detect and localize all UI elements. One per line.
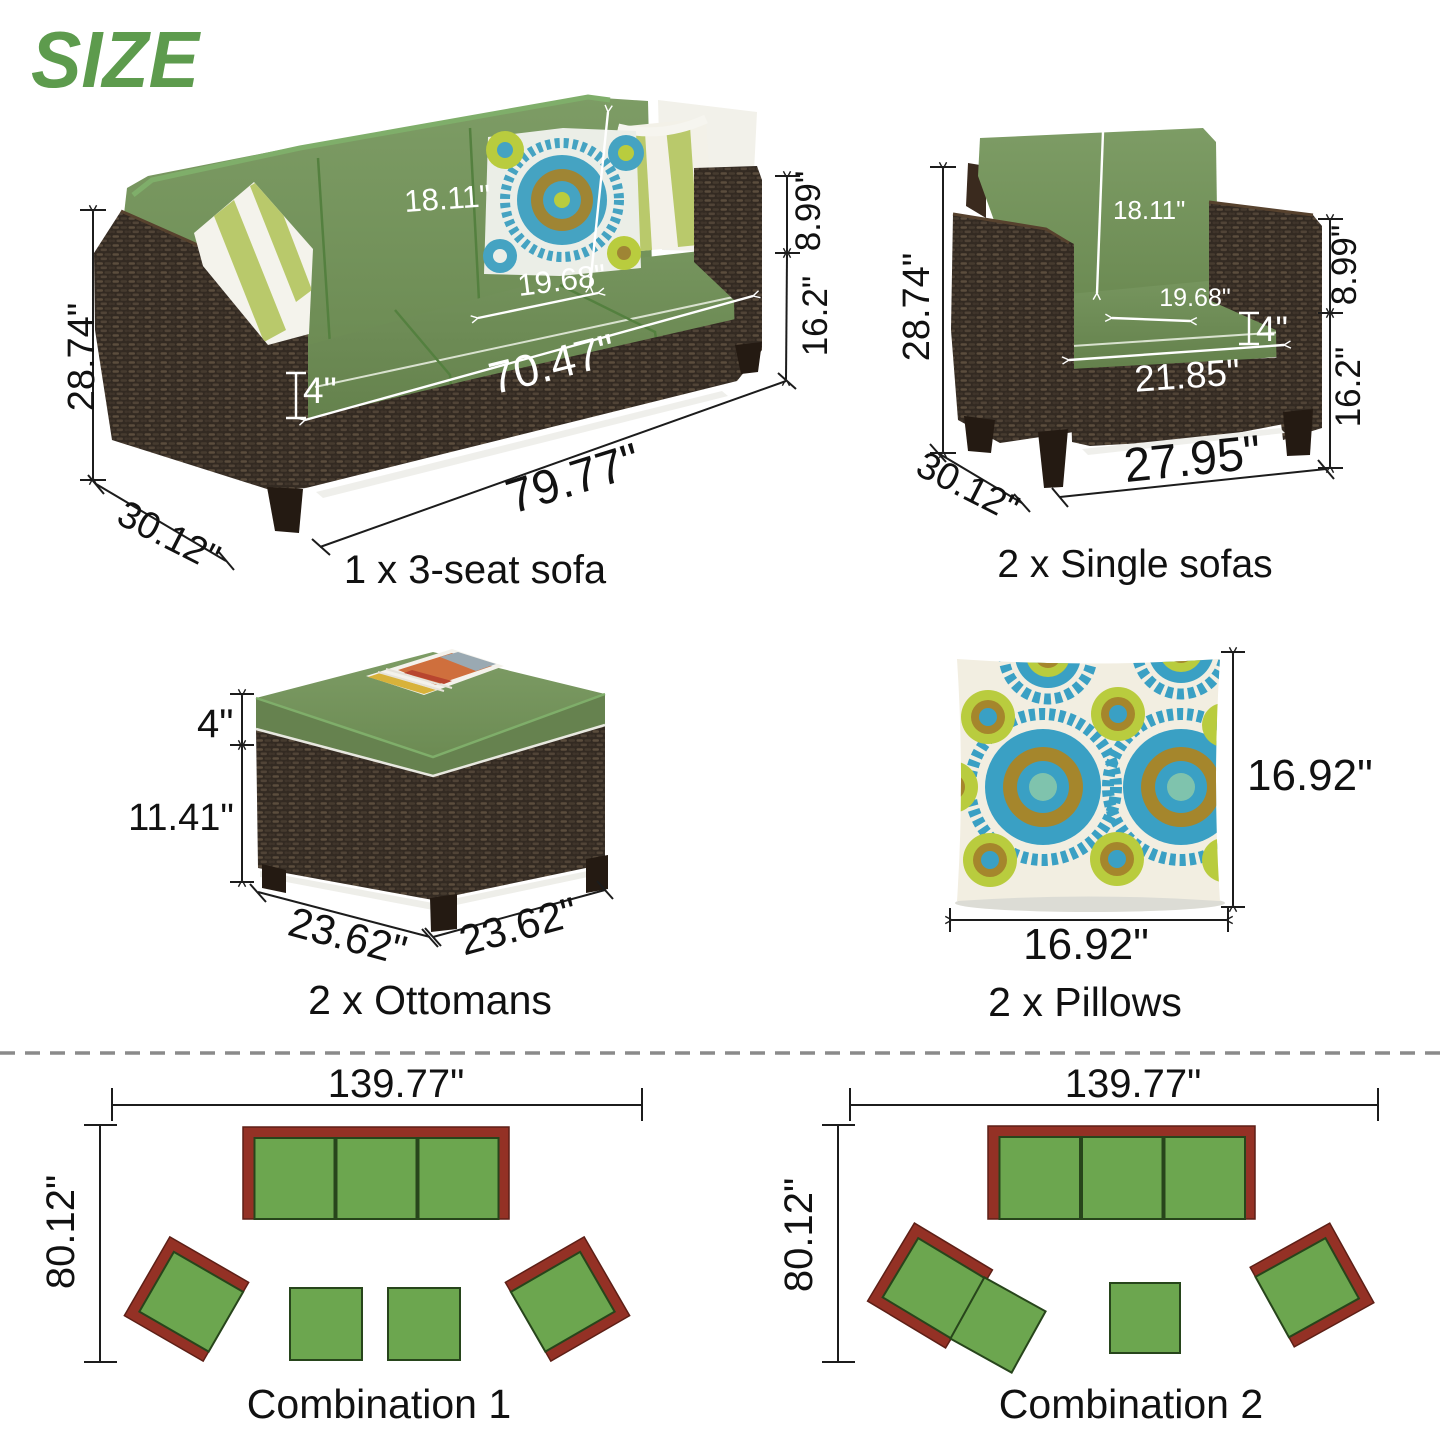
svg-text:19.68": 19.68"	[1159, 284, 1230, 312]
svg-text:16.2": 16.2"	[1329, 347, 1368, 428]
svg-text:Combination 2: Combination 2	[999, 1381, 1263, 1427]
svg-text:1 x 3-seat sofa: 1 x 3-seat sofa	[344, 548, 607, 592]
svg-text:18.11": 18.11"	[403, 178, 492, 219]
svg-text:16.2": 16.2"	[796, 276, 835, 357]
svg-text:18.11": 18.11"	[1113, 195, 1185, 225]
svg-text:139.77": 139.77"	[328, 1062, 465, 1106]
svg-text:8.99": 8.99"	[1325, 225, 1364, 306]
svg-text:16.92": 16.92"	[1023, 920, 1149, 969]
svg-text:2 x Ottomans: 2 x Ottomans	[308, 977, 552, 1023]
svg-text:2 x Pillows: 2 x Pillows	[988, 979, 1182, 1025]
svg-text:Combination 1: Combination 1	[247, 1381, 511, 1427]
svg-text:SIZE: SIZE	[31, 15, 201, 104]
svg-text:2 x Single sofas: 2 x Single sofas	[997, 543, 1272, 586]
svg-text:11.41": 11.41"	[128, 797, 234, 839]
svg-text:4": 4"	[1256, 310, 1288, 349]
svg-text:28.74": 28.74"	[61, 303, 103, 412]
svg-text:80.12": 80.12"	[39, 1175, 83, 1289]
svg-text:21.85": 21.85"	[1133, 351, 1241, 399]
svg-text:80.12": 80.12"	[777, 1178, 821, 1292]
svg-text:4": 4"	[303, 370, 337, 411]
svg-text:4": 4"	[197, 702, 233, 746]
svg-text:16.92": 16.92"	[1247, 751, 1373, 800]
svg-text:139.77": 139.77"	[1065, 1062, 1202, 1106]
svg-text:8.99": 8.99"	[789, 171, 828, 252]
svg-text:28.74": 28.74"	[896, 253, 938, 362]
